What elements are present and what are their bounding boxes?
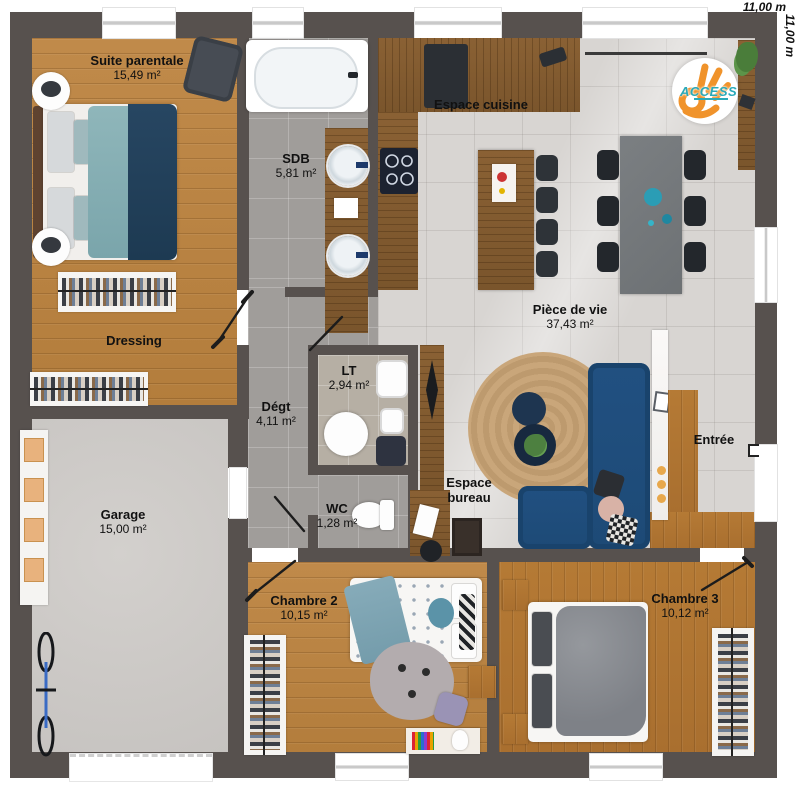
access-logo: ACCESS [672,58,738,124]
dimension-top: 11,00 m [743,0,786,14]
room-label-dressing: Dressing [106,334,162,349]
room-name: Chambre 3 [651,592,718,607]
room-name: Suite parentale [90,54,183,69]
room-area: 10,15 m² [270,609,337,623]
room-label-degt: Dégt 4,11 m² [256,400,296,429]
room-area: 15,49 m² [90,69,183,83]
floor-plan: ACCESS Suite parentale 15,49 m² SDB 5,81… [0,0,800,800]
room-label-chambre-2: Chambre 2 10,15 m² [270,594,337,623]
room-label-piece-de-vie: Pièce de vie 37,43 m² [533,303,607,332]
room-area: 37,43 m² [533,318,607,332]
room-area: 15,00 m² [99,523,146,537]
logo-tagline-bar [694,98,728,100]
room-name: Espace bureau [438,476,500,506]
room-label-espace-cuisine: Espace cuisine [434,98,528,113]
room-label-lt: LT 2,94 m² [329,364,370,393]
room-area: 10,12 m² [651,607,718,621]
room-area: 2,94 m² [329,379,370,393]
room-name: SDB [276,152,317,167]
room-name: Chambre 2 [270,594,337,609]
room-label-suite-parentale: Suite parentale 15,49 m² [90,54,183,83]
room-name: LT [329,364,370,379]
room-name: Pièce de vie [533,303,607,318]
room-label-chambre-3: Chambre 3 10,12 m² [651,592,718,621]
room-label-espace-bureau: Espace bureau [438,476,500,506]
room-label-wc: WC 1,28 m² [317,502,358,531]
room-name: WC [317,502,358,517]
room-name: Dressing [106,334,162,349]
room-name: Espace cuisine [434,98,528,113]
room-label-sdb: SDB 5,81 m² [276,152,317,181]
dimension-right: 11,00 m [783,14,797,57]
logo-brand-text: ACCESS [680,84,734,99]
room-area: 5,81 m² [276,167,317,181]
room-name: Garage [99,508,146,523]
room-label-garage: Garage 15,00 m² [99,508,146,537]
room-area: 1,28 m² [317,517,358,531]
room-name: Dégt [256,400,296,415]
room-area: 4,11 m² [256,415,296,429]
room-name: Entrée [694,433,734,448]
room-label-entree: Entrée [694,433,734,448]
